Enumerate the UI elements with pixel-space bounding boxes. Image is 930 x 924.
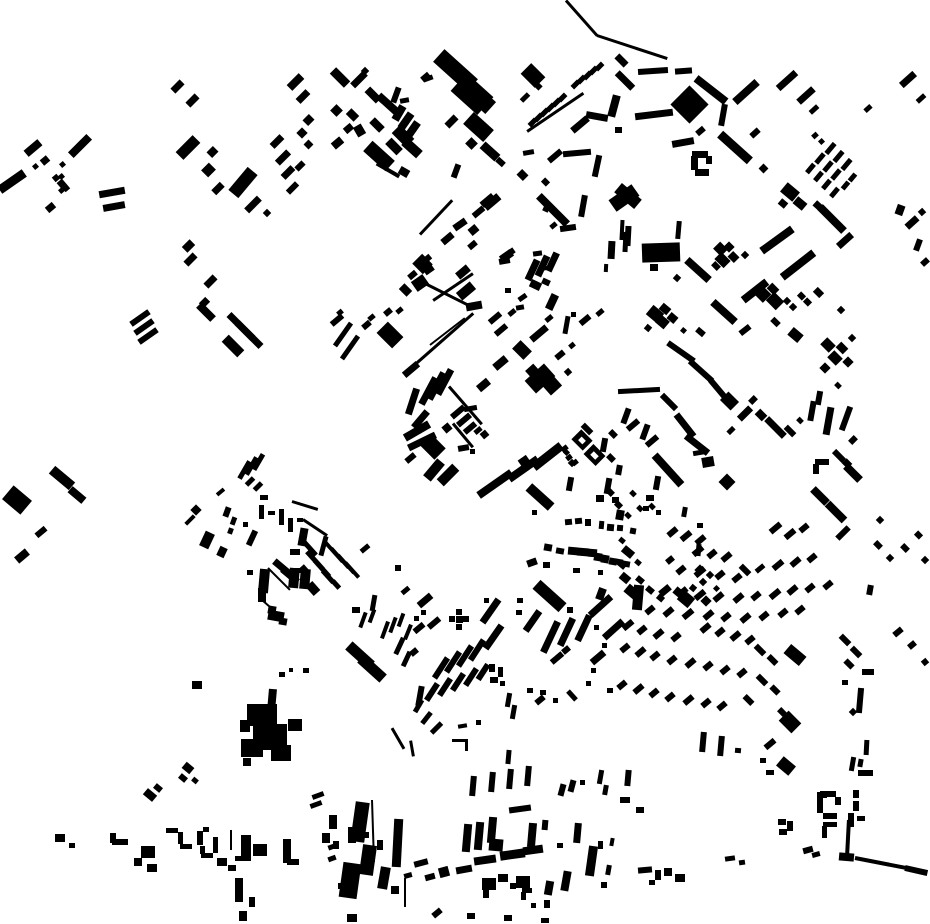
building [427,616,442,630]
building [556,547,565,554]
building [771,559,784,571]
building [329,815,337,829]
building [296,89,311,104]
building [822,160,834,172]
building [675,564,687,575]
building [228,865,236,871]
building [684,257,712,283]
building [302,114,314,126]
building [825,501,848,524]
building [717,130,753,163]
building [303,139,313,149]
building [806,552,818,563]
building [467,224,479,236]
building [789,556,801,568]
building [596,770,603,785]
building [393,637,405,655]
building [562,316,570,335]
building [259,505,264,519]
building [482,624,504,651]
building [921,556,929,564]
building [719,664,731,675]
building [339,861,362,898]
building [719,474,736,491]
building [524,766,532,786]
building [532,580,566,612]
building [620,797,630,803]
building [504,693,511,708]
building [606,523,614,531]
building [534,694,546,705]
building [824,141,836,154]
building [768,588,781,600]
building [285,181,298,194]
building [34,526,47,538]
building [819,362,830,373]
building [672,137,695,148]
building [206,146,218,158]
building [40,155,51,166]
building [873,540,883,550]
building [170,79,184,93]
building [605,865,612,876]
building [847,172,857,182]
building [853,790,859,798]
building [697,523,703,528]
building [103,201,126,212]
building [670,85,708,123]
building [483,890,489,898]
building [253,481,264,492]
building [391,819,402,867]
building [176,135,201,160]
building [268,511,275,515]
building [796,416,804,424]
building [369,117,385,133]
building [706,548,718,559]
building [532,250,542,256]
building [404,452,416,464]
building [484,598,489,603]
building [495,157,506,167]
building [679,326,686,333]
building [850,646,863,659]
building [863,103,872,112]
building [813,464,819,474]
building [542,820,549,830]
building [528,279,541,291]
building [541,278,551,287]
building [866,585,874,596]
building [736,667,748,678]
building [429,721,442,734]
building [646,495,654,501]
building [330,313,345,327]
building [853,801,859,811]
building [916,93,927,103]
building [714,569,726,580]
building [367,313,376,321]
building [811,131,819,139]
building [739,612,751,624]
building [229,516,236,525]
building [395,565,401,571]
building [348,827,356,843]
building [246,529,258,546]
building [192,681,202,689]
building [506,769,514,789]
building [598,521,604,529]
building [522,149,534,156]
building [624,511,632,519]
building [352,123,365,137]
building [409,740,415,756]
building [848,334,856,342]
building [615,465,623,476]
building [822,826,827,838]
building [635,108,674,120]
building [452,217,467,231]
building [856,687,864,712]
building [598,570,603,575]
building [279,672,285,677]
building [670,631,682,642]
building [99,186,126,197]
building [463,112,494,142]
building [492,355,509,371]
building [467,913,475,919]
building [368,609,377,624]
building [449,616,455,622]
building [638,866,652,873]
building [505,288,511,293]
building [391,886,399,894]
building [413,858,428,867]
building [216,546,227,558]
building [303,668,309,673]
building [706,571,714,579]
building [558,783,567,796]
building [913,530,922,539]
building [789,303,797,311]
building [821,178,832,190]
building [842,680,848,685]
building [804,582,816,593]
building [499,848,525,860]
building [531,903,536,908]
building [377,322,404,349]
building [181,239,194,252]
building [456,624,462,630]
building [695,126,706,136]
building [699,578,707,586]
building [462,824,472,853]
building [520,92,531,103]
building [545,293,559,311]
building [598,841,603,849]
building [345,108,358,121]
building [714,626,726,637]
building [526,557,538,567]
building [758,610,770,621]
building [424,873,435,881]
building [517,598,523,603]
building [650,264,658,271]
building [614,53,628,67]
building [203,274,217,288]
building [184,514,195,525]
building [759,226,794,255]
building [594,61,604,71]
building [618,386,660,393]
building [451,163,461,178]
building [777,607,789,618]
building [710,299,738,325]
building [456,864,473,874]
building [578,314,591,326]
building [839,405,853,431]
building [600,438,608,453]
building [814,152,826,164]
building [839,634,852,647]
building [322,833,330,843]
building [681,507,688,518]
building [200,846,205,854]
building [830,168,842,180]
building [401,138,423,159]
building [456,609,462,615]
building [147,864,157,872]
building [645,585,655,595]
building [182,762,195,775]
building [735,747,741,753]
building [294,160,305,171]
building [243,522,248,527]
building [653,476,661,491]
building [338,883,346,889]
building [488,311,503,325]
building [180,844,192,849]
boundary-line [904,865,927,876]
building [211,181,224,194]
building [44,201,55,212]
building [630,528,637,535]
building [431,907,443,918]
building [848,435,858,445]
building [609,838,614,847]
building [547,149,563,164]
building [110,833,116,843]
building [802,297,811,306]
building [741,251,749,259]
building [178,773,188,783]
building [857,759,863,768]
building [289,668,293,672]
building [796,86,816,105]
building [479,598,501,625]
building [675,221,682,239]
building [573,823,582,844]
building [438,866,450,878]
building [532,510,537,515]
building [815,391,823,406]
building [420,711,433,725]
building [377,840,383,850]
building [498,874,508,882]
building [764,416,787,439]
building [247,704,277,726]
building [858,770,873,776]
boundary-line [597,34,668,60]
building [404,387,419,415]
building [500,681,505,686]
building [731,572,743,583]
building [578,195,588,218]
building [617,525,624,532]
building [296,127,307,138]
building [717,736,725,756]
building [645,434,660,448]
building [701,456,715,468]
building [857,816,865,821]
building [662,606,674,618]
building [754,644,767,657]
building [644,604,656,615]
building [805,162,816,174]
building [749,127,760,138]
building [642,242,681,262]
building [658,583,672,596]
building [812,286,823,297]
building [516,304,525,310]
building [554,349,566,360]
building [398,166,411,178]
building [811,851,820,858]
building [648,687,660,698]
building [624,226,631,246]
building [822,579,834,590]
building [230,830,232,850]
building [31,162,38,169]
building [541,918,549,923]
building [638,67,668,75]
building [829,186,840,198]
building [550,651,565,665]
building [779,829,787,835]
building [607,94,620,117]
building [444,114,458,128]
building [183,252,197,266]
building [241,835,251,861]
building [843,463,863,483]
building [330,104,343,117]
building [862,669,874,675]
building [529,324,549,342]
building [247,570,253,575]
building [505,750,511,764]
building [489,664,495,672]
building [664,868,672,876]
building [564,368,572,376]
building [907,640,917,650]
building [2,485,32,514]
building [835,525,851,541]
building [629,489,637,497]
building [166,828,178,833]
building [755,563,766,573]
building [549,221,558,229]
building [263,209,271,217]
building [644,324,652,332]
building [349,888,355,893]
building [660,393,678,411]
building [636,807,644,813]
building [243,758,251,766]
building [602,643,607,648]
building [621,545,635,559]
building [766,654,778,666]
building [563,149,591,157]
building [414,616,419,621]
building [456,281,476,300]
building [69,843,75,848]
building [358,612,367,628]
building [624,770,631,786]
building [832,149,844,162]
building [24,139,43,157]
building [674,412,697,438]
building [543,562,550,568]
building [920,257,930,267]
building [720,551,732,563]
building [474,855,497,866]
building [288,719,302,731]
building [412,622,425,634]
building [544,314,553,323]
building [744,634,756,645]
building [748,395,758,405]
building [235,878,243,902]
building [141,846,155,858]
building [197,831,203,845]
building [606,453,616,463]
building [526,483,555,511]
building [787,327,803,343]
building [399,97,409,103]
building [178,832,183,844]
building [783,644,806,666]
building [840,157,852,170]
building [377,866,391,889]
building [634,558,642,566]
building [594,625,599,630]
building [913,238,923,251]
building [652,628,664,640]
building [279,509,284,525]
building [843,658,854,669]
building [567,607,573,613]
building [395,306,404,314]
building [607,241,615,259]
building [201,163,216,178]
building [560,870,571,891]
building [602,785,609,796]
building [778,198,789,209]
building [918,208,926,216]
building [615,127,622,133]
building [601,882,607,888]
building [712,584,719,591]
